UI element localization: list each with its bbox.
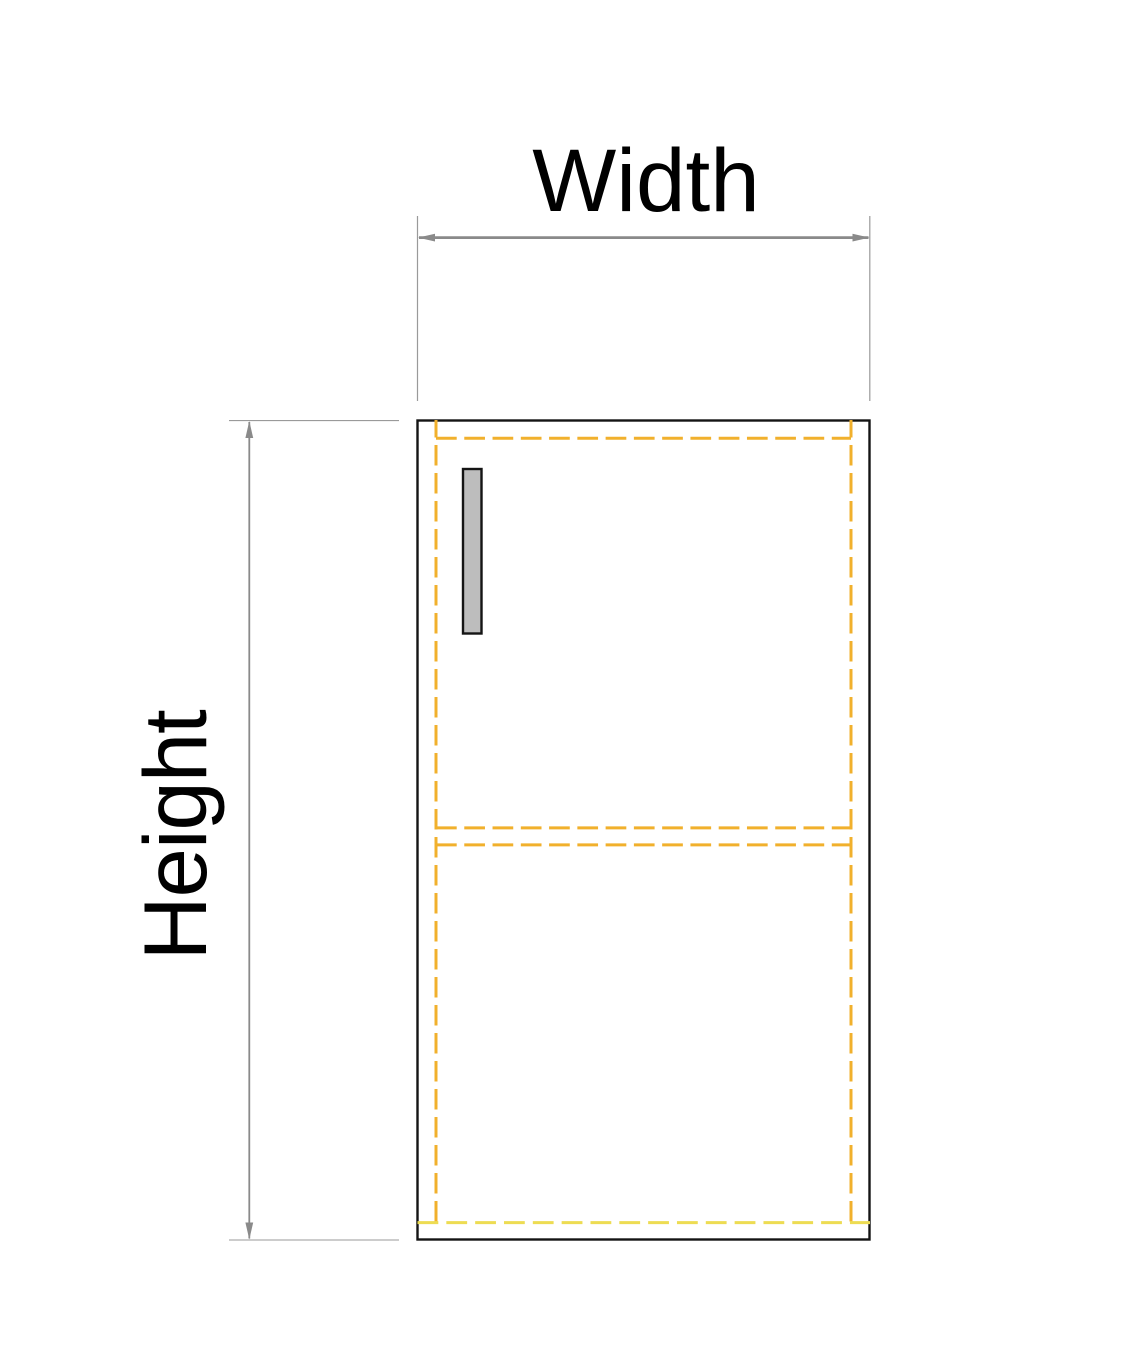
svg-text:Height: Height (125, 709, 225, 961)
svg-text:Width: Width (532, 130, 760, 230)
